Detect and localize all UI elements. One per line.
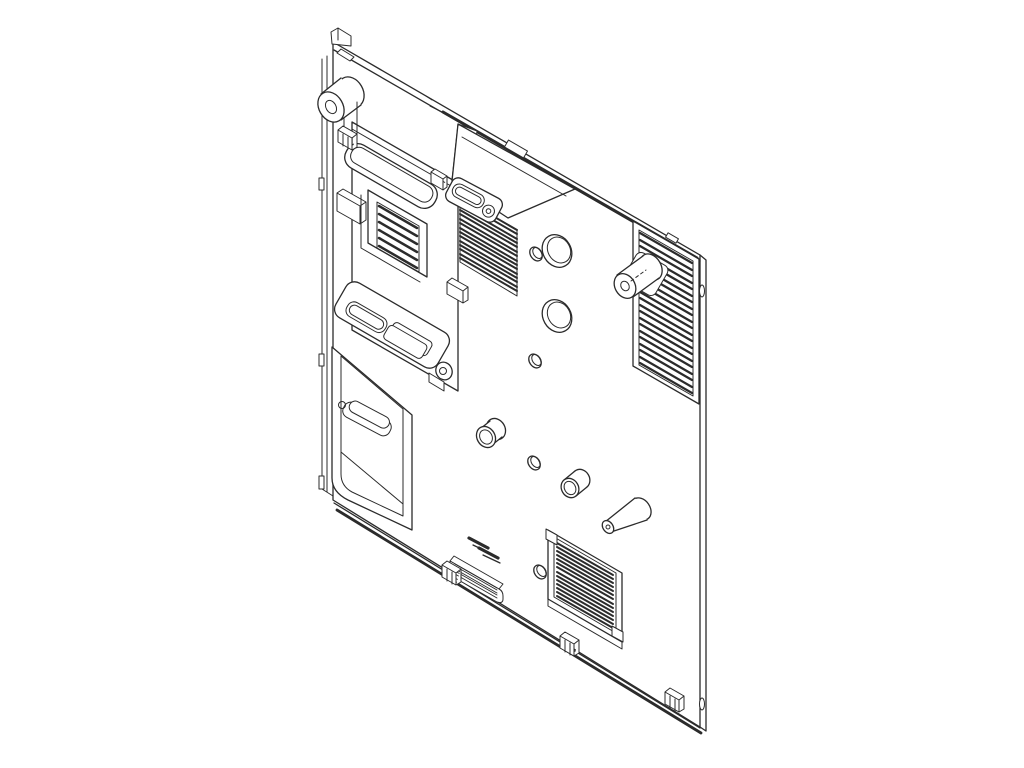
drawing-canvas: Black-and-white isometric CAD line drawi… (0, 0, 1024, 768)
technical-drawing: Black-and-white isometric CAD line drawi… (0, 0, 1024, 768)
